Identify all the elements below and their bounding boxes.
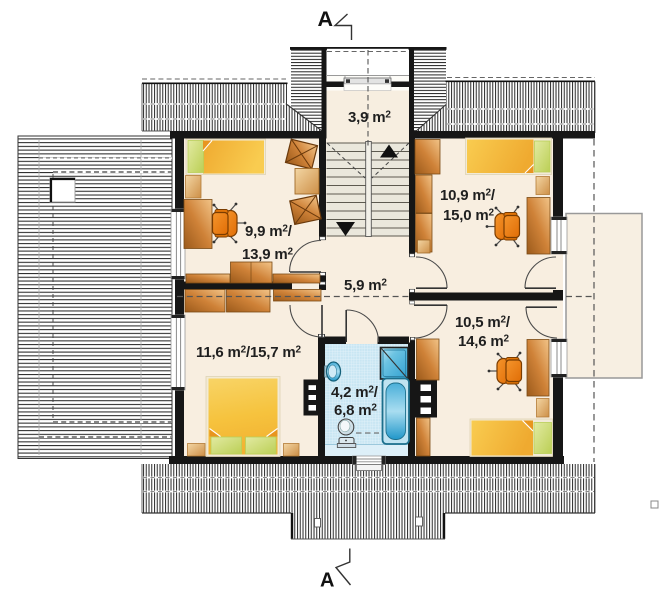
- svg-text:3,9 m2: 3,9 m2: [348, 109, 391, 126]
- svg-text:14,6 m2: 14,6 m2: [458, 333, 510, 350]
- svg-text:5,9 m2: 5,9 m2: [344, 277, 387, 294]
- svg-text:A: A: [318, 7, 334, 31]
- svg-text:15,0 m2: 15,0 m2: [443, 207, 495, 224]
- svg-text:A: A: [320, 570, 334, 592]
- svg-text:6,8 m2: 6,8 m2: [334, 402, 377, 419]
- svg-text:13,9 m2: 13,9 m2: [242, 246, 294, 263]
- svg-text:11,6 m2/15,7 m2: 11,6 m2/15,7 m2: [196, 344, 302, 361]
